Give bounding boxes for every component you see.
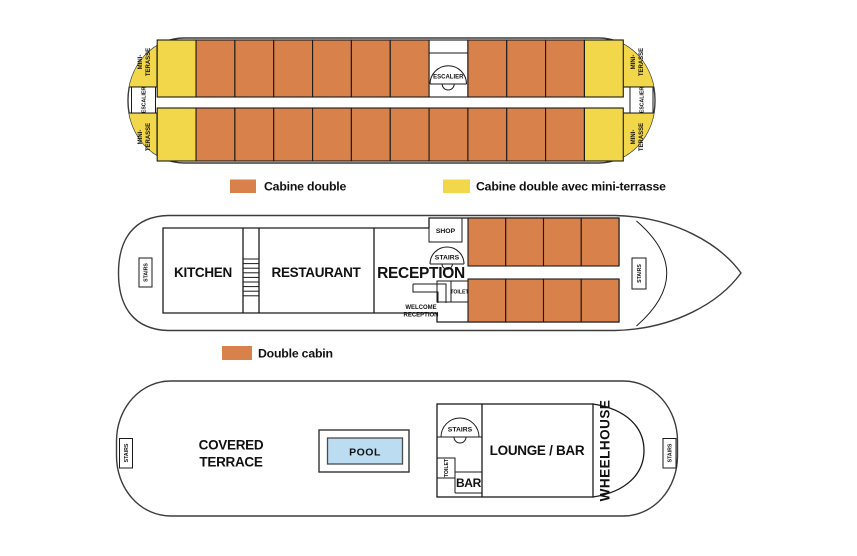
- legend-swatch-double-cabin: [222, 346, 252, 360]
- deck-plan-diagram: ESCALIER ESCALIER ESCALIER MINI- TERASSE…: [0, 0, 857, 556]
- cabin-cell: [235, 40, 274, 97]
- legend-label-double-cabin: Double cabin: [258, 347, 333, 361]
- bar-label: BAR: [456, 476, 482, 490]
- cabin-cell: [544, 279, 582, 322]
- lounge-bar-label: LOUNGE / BAR: [490, 443, 585, 458]
- legend-swatch-cabin: [230, 180, 256, 194]
- pool: POOL: [319, 430, 409, 472]
- escalier-box-right-label: ESCALIER: [640, 87, 646, 113]
- cabin-cell: [581, 218, 619, 266]
- mini-terrace-cabin-cell: [584, 108, 623, 161]
- cabin-cell: [506, 218, 544, 266]
- cabin-cell: [390, 108, 429, 161]
- cabin-cell: [507, 108, 546, 161]
- cabin-cell: [429, 108, 468, 161]
- covered-terrace-label: TERRACE: [199, 455, 262, 470]
- mini-terrace-label: MINI-: [631, 55, 637, 70]
- cabin-cell: [468, 279, 506, 322]
- sun-deck: STAIRS COVERED TERRACE POOL STAIRS TOILE…: [117, 381, 678, 516]
- cabin-cell: [546, 108, 585, 161]
- stairwell-label: ESCALIER: [433, 75, 464, 81]
- toilet-label: TOILET: [444, 458, 450, 477]
- toilet-label: TOILET: [450, 290, 469, 296]
- cabin-cell: [351, 40, 390, 97]
- mini-terrace-label: TERASSE: [639, 123, 645, 151]
- stairs-box-right-label: STAIRS: [668, 443, 674, 462]
- cabin-cell: [581, 279, 619, 322]
- mini-terrace-label: TERASSE: [639, 48, 645, 76]
- mini-terrace-label: TERASSE: [146, 123, 152, 151]
- legend-main-deck: Double cabin: [222, 346, 333, 361]
- legend-label-cabin: Cabine double: [264, 180, 346, 194]
- restaurant-label: RESTAURANT: [272, 265, 362, 280]
- mini-terrace-cabin-cell: [584, 40, 623, 97]
- mini-terrace-label: MINI-: [138, 55, 144, 70]
- cabin-cell: [544, 218, 582, 266]
- stairs-label: STAIRS: [448, 427, 473, 434]
- reception-label: RECEPTION: [377, 265, 465, 282]
- cabin-cell: [351, 108, 390, 161]
- welcome-reception-label: RECEPTION: [403, 313, 438, 319]
- cabin-cell: [274, 40, 313, 97]
- cabin-cell: [196, 40, 235, 97]
- kitchen-label: KITCHEN: [174, 265, 232, 280]
- cabin-cell: [196, 108, 235, 161]
- legend-upper-deck: Cabine double Cabine double avec mini-te…: [230, 180, 666, 194]
- cabin-cell: [313, 40, 352, 97]
- upper-deck-cabin-row-bottom: [157, 108, 623, 161]
- cabin-cell: [507, 40, 546, 97]
- cabin-cell: [313, 108, 352, 161]
- cabin-cell: [390, 40, 429, 97]
- cabin-cell: [235, 108, 274, 161]
- stairs-box-bow-label: STAIRS: [637, 264, 643, 283]
- upper-deck-cabin-row-top: [157, 40, 623, 97]
- shop-label: SHOP: [436, 228, 456, 235]
- pool-label: POOL: [349, 447, 381, 459]
- upper-deck: ESCALIER ESCALIER ESCALIER MINI- TERASSE…: [127, 38, 656, 163]
- mini-terrace-label: TERASSE: [146, 48, 152, 76]
- main-deck: STAIRS KITCHEN RESTAURANT RECEPTION SHOP…: [119, 216, 742, 331]
- cabin-cell: [468, 40, 507, 97]
- deck-plan-page: ESCALIER ESCALIER ESCALIER MINI- TERASSE…: [0, 0, 857, 556]
- welcome-reception-label: WELCOME: [405, 305, 436, 311]
- cabin-cell: [468, 218, 506, 266]
- mini-terrace-cabin-cell: [157, 40, 196, 97]
- legend-swatch-terrace-cabin: [443, 180, 470, 194]
- stairs-box-stern-label: STAIRS: [144, 263, 150, 282]
- cabin-cell: [274, 108, 313, 161]
- mini-terrace-label: MINI-: [138, 130, 144, 145]
- cabin-cell: [506, 279, 544, 322]
- escalier-box-left-label: ESCALIER: [142, 87, 148, 113]
- cabin-cell: [546, 40, 585, 97]
- stairwell-cell: [429, 40, 468, 97]
- covered-terrace-label: COVERED: [199, 438, 264, 453]
- mini-terrace-cabin-cell: [157, 108, 196, 161]
- wheelhouse-label: WHEELHOUSE: [598, 400, 613, 502]
- stairs-label: STAIRS: [435, 255, 460, 262]
- mini-terrace-label: MINI-: [631, 130, 637, 145]
- stairs-box-left-label: STAIRS: [124, 443, 130, 462]
- cabin-cell: [468, 108, 507, 161]
- legend-label-terrace-cabin: Cabine double avec mini-terrasse: [476, 180, 666, 194]
